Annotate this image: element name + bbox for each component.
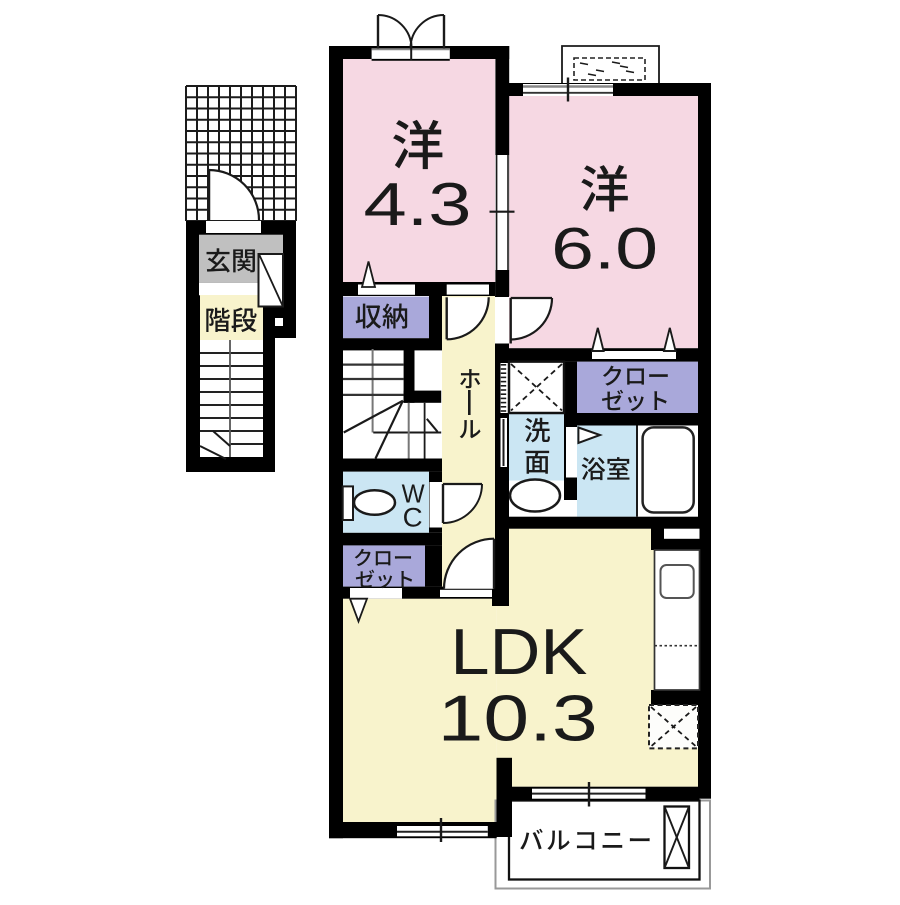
svg-text:4.3: 4.3 — [364, 170, 472, 238]
svg-text:LDK: LDK — [450, 616, 587, 688]
svg-text:C: C — [403, 503, 423, 533]
svg-text:6.0: 6.0 — [551, 216, 658, 281]
svg-text:10.3: 10.3 — [438, 683, 598, 755]
